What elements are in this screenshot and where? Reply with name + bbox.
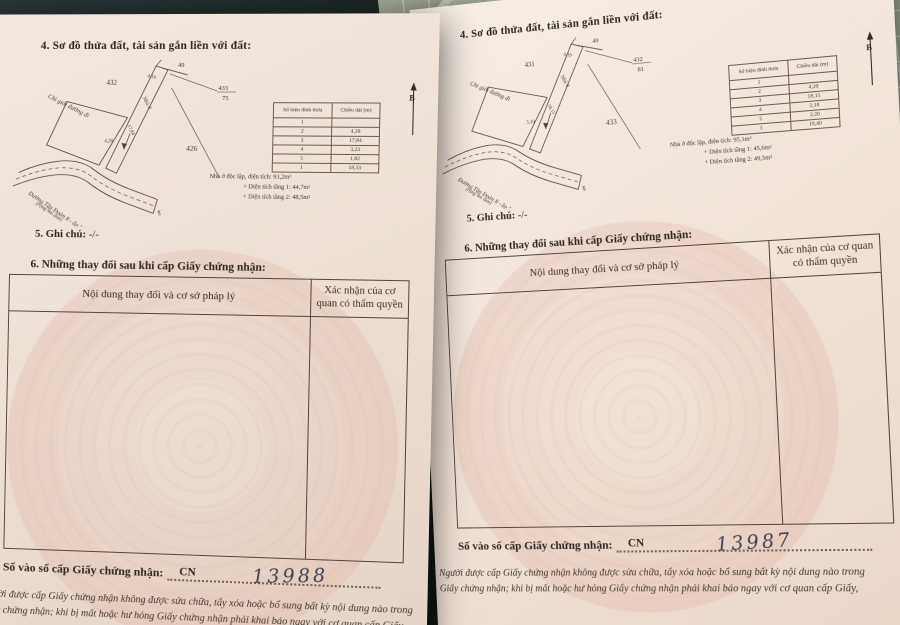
issue-number-handwritten: 13988 <box>252 565 329 588</box>
edge-length-cross: 4,28 <box>104 139 113 144</box>
edge-length-top: 4,19 <box>147 74 157 81</box>
change-col1-header: Nội dung thay đổi và cơ sở pháp lý <box>9 275 312 316</box>
measure-cell: 17,84 <box>331 136 379 145</box>
change-col1-cell <box>447 279 783 527</box>
measure-cell: 3,23 <box>331 145 379 154</box>
change-table-body <box>4 311 407 561</box>
section5-value: -/- <box>89 229 99 241</box>
measure-cell: 1 <box>272 163 331 173</box>
measure-table: Số hiệu đỉnh thửa Chiều dài (m) 1 24,28 … <box>272 102 381 174</box>
issue-number-label: Số vào sổ cấp Giấy chứng nhận: <box>3 560 164 581</box>
photo-stage: 4. Sơ đồ thửa đất, tài sản gắn liền với … <box>0 0 900 625</box>
north-label: B <box>409 93 415 102</box>
edge-length-side: 17,84 <box>126 124 136 137</box>
fraction-parcel-area: 81 <box>637 66 644 74</box>
parcel-label-apex: 49 <box>592 37 599 45</box>
change-col2-header: Xác nhận của cơ quan có thẩm quyền <box>770 234 881 277</box>
measure-cell: 5 <box>272 154 331 164</box>
measure-cell: 1 <box>273 118 332 127</box>
certificate-page-left: 4. Sơ đồ thửa đất, tài sản gắn liền với … <box>0 13 440 625</box>
footer-line1: Người được cấp Giấy chứng nhận không đượ… <box>439 564 900 582</box>
measure-cell: 4,28 <box>332 127 380 136</box>
measure-col2-header: Chiều dài (m) <box>332 103 380 118</box>
house-area-floor2: + Diện tích tầng 2: 48,5m² <box>243 192 389 204</box>
north-arrow-icon: B <box>861 31 881 90</box>
north-arrow-icon: B <box>404 82 422 139</box>
measure-col1-header: Số hiệu đỉnh thửa <box>273 103 332 118</box>
parcel-label-mid: 433 <box>606 118 618 127</box>
cadastral-diagram: Chỉ giới đường đi 49 4,19 431 Nhà ở 18,1… <box>435 25 695 213</box>
measure-cell: 2 <box>273 127 332 136</box>
issue-number-line: Số vào sổ cấp Giấy chứng nhận: CN 13987 <box>458 533 873 554</box>
issue-number-label: Số vào sổ cấp Giấy chứng nhận: <box>458 538 613 554</box>
road-width-label: 4m <box>156 209 163 217</box>
section6-title: 6. Những thay đổi sau khi cấp Giấy chứng… <box>30 258 265 274</box>
measure-cell: 18,33 <box>331 164 379 174</box>
measure-cell: 3 <box>273 136 332 145</box>
edge-length-side: 18,15 <box>546 104 556 117</box>
change-col2-cell <box>772 273 894 523</box>
parcel-label-mid: 426 <box>186 144 198 153</box>
section5-note: 5. Ghi chú: -/- <box>35 228 99 241</box>
footer-note: Người được cấp Giấy chứng nhận không đượ… <box>439 564 900 597</box>
measure-cell: 1,82 <box>331 155 379 165</box>
road-name-label: Đường Tập Đoàn 8 - ấp Kế Mỹ <box>456 176 524 213</box>
boundary-line-label: Chỉ giới đường đi <box>469 80 511 103</box>
change-table: Nội dung thay đổi và cơ sở pháp lý Xác n… <box>445 233 895 528</box>
house-label: Nhà ở <box>141 96 152 111</box>
house-area-note: Nhà ở độc lập, diện tích: 95,1m² + Diện … <box>670 126 853 171</box>
road-width-label: 4m <box>581 185 588 193</box>
fraction-parcel-number: 432 <box>633 56 643 64</box>
issue-number-dots: CN 13987 <box>616 533 872 552</box>
issue-cn-prefix: CN <box>179 566 196 579</box>
edge-length-cross: 5,10 <box>526 120 535 126</box>
fraction-parcel-area: 75 <box>222 95 229 102</box>
issue-cn-prefix: CN <box>628 537 645 549</box>
section5-label: 5. Ghi chú: <box>35 228 86 241</box>
footer-line2: Giấy chứng nhận; khi bị mất hoặc hư hỏng… <box>440 581 900 598</box>
change-col1-cell <box>4 311 311 558</box>
issue-number-handwritten: 13987 <box>715 529 794 556</box>
section5-value: -/- <box>517 209 527 221</box>
road-name-label: Đường Tập Đoàn 8 - ấp Kế Mỹ <box>26 189 94 228</box>
change-table-body <box>447 273 893 527</box>
section5-note: 5. Ghi chú: -/- <box>466 209 527 225</box>
edge-length-top: 4,19 <box>563 53 573 59</box>
parcel-label-apex: 49 <box>178 62 185 69</box>
north-label: B <box>866 42 872 52</box>
measure-cell: 4 <box>273 145 332 155</box>
section4-title: 4. Sơ đồ thửa đất, tài sản gắn liền với … <box>41 40 252 52</box>
change-col2-header: Xác nhận của cơ quan có thẩm quyền <box>311 280 409 318</box>
certificate-page-right: 4. Sơ đồ thửa đất, tài sản gắn liền với … <box>410 0 900 625</box>
house-area-note: Nhà ở độc lập, diện tích: 93,2m² + Diện … <box>209 172 389 204</box>
change-col2-cell <box>306 317 408 562</box>
house-label: Nhà ở <box>559 74 571 89</box>
measure-cell <box>332 118 380 127</box>
measure-table: Số hiệu đỉnh thửa Chiều dài (m) 1 24,29 … <box>728 55 841 136</box>
fraction-parcel-number: 433 <box>218 85 228 92</box>
parcel-label-adjacent: 432 <box>106 80 117 87</box>
parcel-label-adjacent: 431 <box>525 61 535 69</box>
section5-label: 5. Ghi chú: <box>466 210 515 225</box>
change-table: Nội dung thay đổi và cơ sở pháp lý Xác n… <box>3 274 409 563</box>
cadastral-diagram: Chỉ giới đường đi 49 4,19 432 Nhà ở 17,8… <box>10 58 275 229</box>
